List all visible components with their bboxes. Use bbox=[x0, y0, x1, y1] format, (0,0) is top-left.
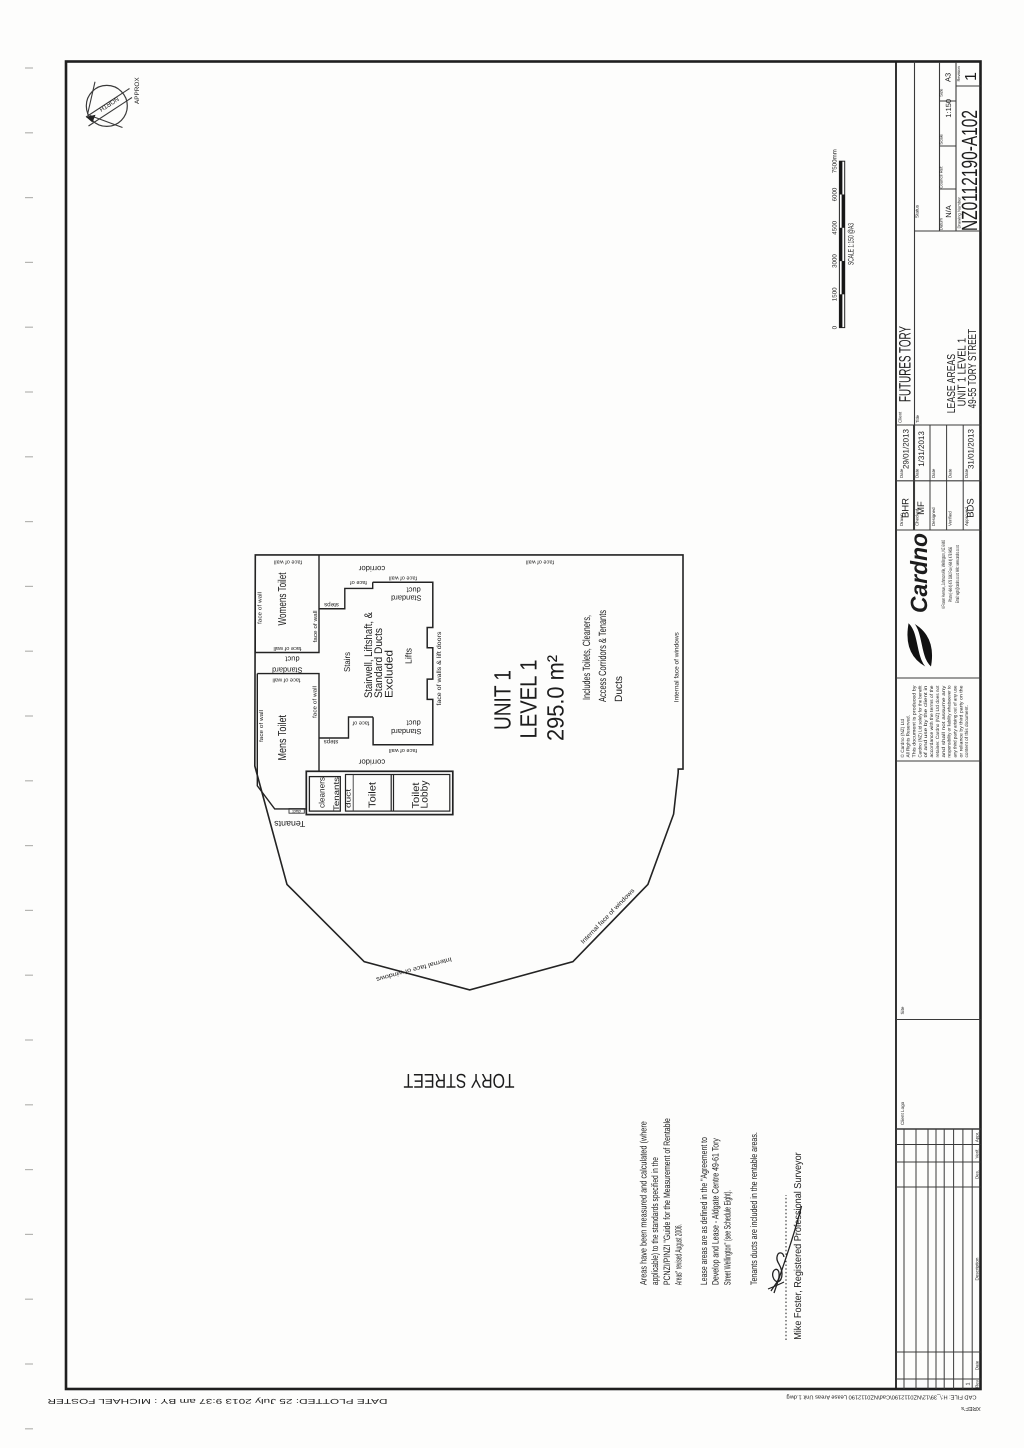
svg-text:N/A: N/A bbox=[944, 205, 953, 218]
svg-text:0: 0 bbox=[832, 325, 839, 329]
svg-text:Areas have been measured and c: Areas have been measured and calculated … bbox=[638, 1121, 648, 1285]
svg-text:steps: steps bbox=[324, 601, 339, 608]
svg-text:Lobby: Lobby bbox=[419, 781, 430, 809]
svg-text:any third party arising out of: any third party arising out of any use bbox=[952, 685, 957, 757]
svg-text:Des.: Des. bbox=[974, 1170, 979, 1179]
svg-text:Date: Date bbox=[914, 468, 919, 478]
svg-text:Verif.: Verif. bbox=[974, 1148, 979, 1158]
svg-text:face of: face of bbox=[352, 719, 369, 726]
svg-text:or reliance by third party on: or reliance by third party on the bbox=[958, 685, 963, 757]
svg-text:7500mm: 7500mm bbox=[832, 149, 839, 173]
svg-text:corridor: corridor bbox=[358, 757, 385, 766]
svg-text:Email: wgtn@cardno.co.nz Web:: Email: wgtn@cardno.co.nz Web: www.cardno… bbox=[955, 545, 961, 603]
svg-text:retainer. Cardno (NZ) Ltd does: retainer. Cardno (NZ) Ltd does not bbox=[935, 685, 940, 758]
svg-text:PCNZI/PINZI "Guide for the Mea: PCNZI/PINZI "Guide for the Measurement o… bbox=[662, 1118, 672, 1285]
svg-text:Council Ref:: Council Ref: bbox=[939, 166, 944, 189]
svg-text:29/01/2013: 29/01/2013 bbox=[902, 428, 911, 469]
svg-text:duct: duct bbox=[406, 586, 421, 595]
svg-text:31/01/2013: 31/01/2013 bbox=[967, 428, 976, 469]
svg-text:Date: Date bbox=[931, 468, 936, 478]
svg-text:1: 1 bbox=[965, 1382, 971, 1385]
svg-text:Cardno: Cardno bbox=[906, 533, 932, 613]
svg-text:Client: Client bbox=[898, 411, 903, 423]
svg-text:4 Fraser Avenue, Johnsonville,: 4 Fraser Avenue, Johnsonville, Wellingto… bbox=[941, 540, 947, 609]
svg-text:face of walls & lift doors: face of walls & lift doors bbox=[436, 632, 443, 706]
svg-text:of and use by the client in: of and use by the client in bbox=[923, 685, 928, 758]
svg-text:Includes Toilets, Cleaners,: Includes Toilets, Cleaners, bbox=[581, 615, 593, 700]
svg-text:Womens Toilet: Womens Toilet bbox=[277, 572, 289, 626]
svg-text:1500: 1500 bbox=[832, 287, 839, 301]
svg-text:Stairs: Stairs bbox=[342, 652, 352, 672]
svg-text:Rev: Rev bbox=[974, 1379, 979, 1388]
svg-text:Scale: Scale bbox=[939, 133, 944, 144]
svg-text:1/31/2013: 1/31/2013 bbox=[917, 431, 926, 467]
svg-text:Date: Date bbox=[974, 1360, 979, 1370]
svg-text:FUTURES TORY: FUTURES TORY bbox=[897, 326, 915, 402]
svg-text:face of wall: face of wall bbox=[258, 710, 265, 742]
svg-text:duct: duct bbox=[292, 809, 301, 814]
svg-text:content of this document.: content of this document. bbox=[964, 705, 969, 757]
svg-text:Toilet: Toilet bbox=[368, 782, 379, 808]
svg-text:3000: 3000 bbox=[832, 254, 839, 268]
svg-text:face of wall: face of wall bbox=[312, 686, 319, 718]
svg-text:Title: Title bbox=[915, 414, 920, 423]
svg-text:Tenants: Tenants bbox=[274, 819, 305, 829]
svg-text:XREF's: XREF's bbox=[961, 1405, 981, 1411]
svg-text:NZ0112190-A102: NZ0112190-A102 bbox=[957, 110, 982, 231]
svg-text:Standard: Standard bbox=[391, 727, 421, 736]
svg-text:corridor: corridor bbox=[358, 564, 385, 573]
svg-text:Mens Toilet: Mens Toilet bbox=[277, 714, 289, 760]
svg-text:BHR: BHR bbox=[901, 498, 912, 518]
svg-text:Client Logo: Client Logo bbox=[900, 1101, 905, 1125]
svg-text:Designed: Designed bbox=[931, 507, 936, 526]
svg-text:Develop and Lease - Aldgate Ce: Develop and Lease - Aldgate Centre 49-61… bbox=[711, 1138, 721, 1285]
svg-text:SCALE 1:150 @A3: SCALE 1:150 @A3 bbox=[847, 223, 856, 265]
svg-text:face of wall: face of wall bbox=[389, 747, 417, 754]
svg-text:MF: MF bbox=[916, 501, 927, 515]
svg-text:Revision: Revision bbox=[956, 66, 961, 81]
svg-text:Excluded: Excluded bbox=[383, 650, 395, 698]
svg-text:applicable) to the standards s: applicable) to the standards specified i… bbox=[650, 1157, 660, 1285]
svg-text:Areas" revised August 2006.: Areas" revised August 2006. bbox=[674, 1224, 684, 1285]
svg-text:Tenants: Tenants bbox=[332, 777, 341, 811]
svg-text:49-55 TORY STREET: 49-55 TORY STREET bbox=[967, 329, 979, 409]
svg-text:295.0 m²: 295.0 m² bbox=[543, 655, 569, 741]
svg-text:Cardno (NZ) Ltd solely for the: Cardno (NZ) Ltd solely for the benefit bbox=[917, 685, 922, 758]
svg-text:face of wall: face of wall bbox=[274, 558, 302, 565]
svg-text:1: 1 bbox=[963, 72, 980, 81]
svg-text:steps: steps bbox=[324, 738, 339, 745]
svg-text:Site: Site bbox=[900, 1006, 905, 1014]
svg-text:4500: 4500 bbox=[832, 220, 839, 234]
svg-text:Access Corridors & Tenants: Access Corridors & Tenants bbox=[597, 610, 609, 702]
svg-text:6000: 6000 bbox=[832, 187, 839, 201]
svg-text:face of wall: face of wall bbox=[312, 611, 319, 643]
svg-text:Standard: Standard bbox=[391, 594, 421, 603]
svg-text:Status: Status bbox=[915, 204, 920, 218]
svg-text:face of wall: face of wall bbox=[526, 558, 554, 565]
svg-text:Tenants ducts are included in: Tenants ducts are included in the rentab… bbox=[749, 1132, 759, 1285]
svg-text:and shall not assume any: and shall not assume any bbox=[941, 685, 946, 758]
svg-text:face of wall: face of wall bbox=[257, 592, 264, 624]
svg-text:All Rights Reserved.: All Rights Reserved. bbox=[906, 715, 911, 757]
svg-text:face of: face of bbox=[350, 579, 367, 586]
svg-text:face of wall: face of wall bbox=[274, 645, 302, 652]
svg-text:Size: Size bbox=[939, 88, 944, 97]
svg-text:APPROX: APPROX bbox=[134, 77, 141, 104]
svg-text:Mike Foster, Registered Profes: Mike Foster, Registered Professional Sur… bbox=[793, 1152, 804, 1340]
svg-text:© Cardno (NZ) Ltd: © Cardno (NZ) Ltd bbox=[900, 718, 905, 757]
svg-text:Lease areas are as defined in: Lease areas are as defined in the "Agree… bbox=[699, 1137, 709, 1285]
svg-text:Date: Date bbox=[947, 468, 952, 478]
svg-text:TORY STREET: TORY STREET bbox=[404, 1069, 515, 1091]
svg-text:Ducts: Ducts bbox=[613, 676, 625, 702]
svg-text:duct: duct bbox=[345, 789, 353, 808]
svg-text:Appr.: Appr. bbox=[974, 1132, 979, 1142]
svg-text:UNIT 1: UNIT 1 bbox=[490, 670, 516, 730]
svg-text:accordance with the terms of t: accordance with the terms of the bbox=[929, 685, 934, 757]
svg-text:Description: Description bbox=[974, 1257, 979, 1280]
svg-text:Verified: Verified bbox=[947, 511, 952, 526]
svg-text:A3: A3 bbox=[944, 73, 953, 82]
svg-text:Lifts: Lifts bbox=[404, 648, 414, 664]
svg-text:duct: duct bbox=[285, 655, 300, 664]
svg-text:LEVEL 1: LEVEL 1 bbox=[516, 660, 542, 739]
svg-text:Standard: Standard bbox=[272, 665, 302, 674]
svg-text:Internal face of windows: Internal face of windows bbox=[674, 632, 681, 702]
svg-text:DATE PLOTTED: 25 July 2013 9:3: DATE PLOTTED: 25 July 2013 9:37 am BY : … bbox=[48, 1397, 388, 1405]
svg-text:Street Wellington" (see Schedu: Street Wellington" (see Schedule Eight). bbox=[722, 1190, 732, 1285]
svg-text:This document is produced by: This document is produced by bbox=[912, 685, 917, 758]
svg-text:face of wall: face of wall bbox=[389, 574, 417, 581]
svg-text:face of wall: face of wall bbox=[273, 677, 301, 684]
svg-text:duct: duct bbox=[406, 719, 421, 728]
svg-text:CAD FILE: H:\_39\12\NZ0112190\: CAD FILE: H:\_39\12\NZ0112190\Cad\NZ0112… bbox=[787, 1393, 977, 1400]
svg-text:responsibility or liability wh: responsibility or liability whatsoever t… bbox=[947, 685, 952, 757]
svg-text:Datum: Datum bbox=[939, 217, 944, 230]
svg-text:1:150: 1:150 bbox=[944, 99, 953, 118]
svg-text:cleaners: cleaners bbox=[318, 777, 327, 808]
svg-text:Phone (+64 4) 478 0342 Fax (+: Phone (+64 4) 478 0342 Fax (+64 4) 478 9… bbox=[948, 547, 954, 602]
svg-text:BDS: BDS bbox=[966, 498, 977, 518]
